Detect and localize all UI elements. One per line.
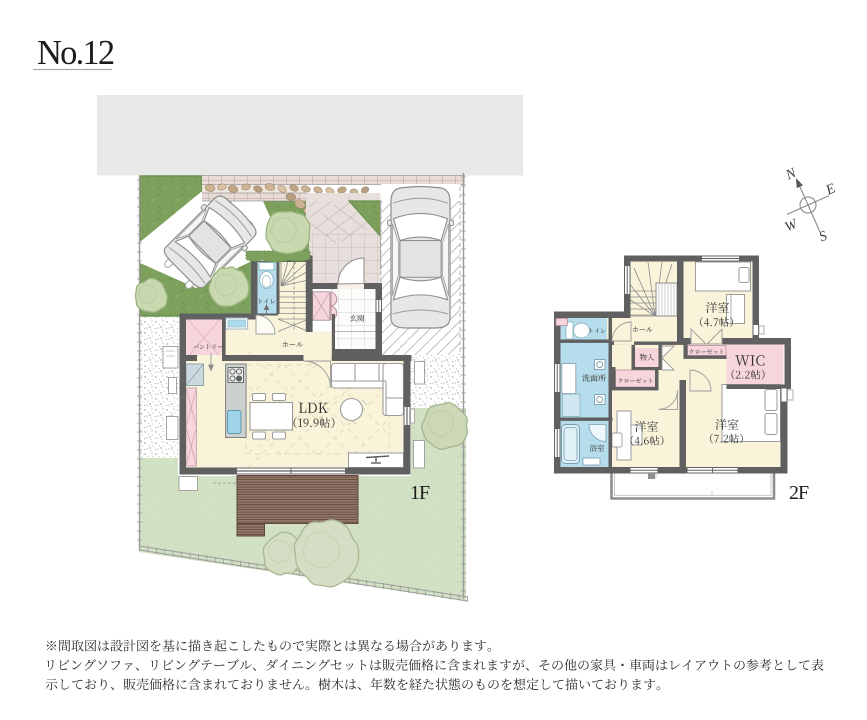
svg-text:S: S xyxy=(817,229,829,246)
svg-text:No.12: No.12 xyxy=(37,34,114,72)
svg-text:2F: 2F xyxy=(789,482,809,504)
svg-text:E: E xyxy=(823,181,838,199)
svg-text:1F: 1F xyxy=(410,482,430,504)
svg-text:W: W xyxy=(783,216,801,235)
